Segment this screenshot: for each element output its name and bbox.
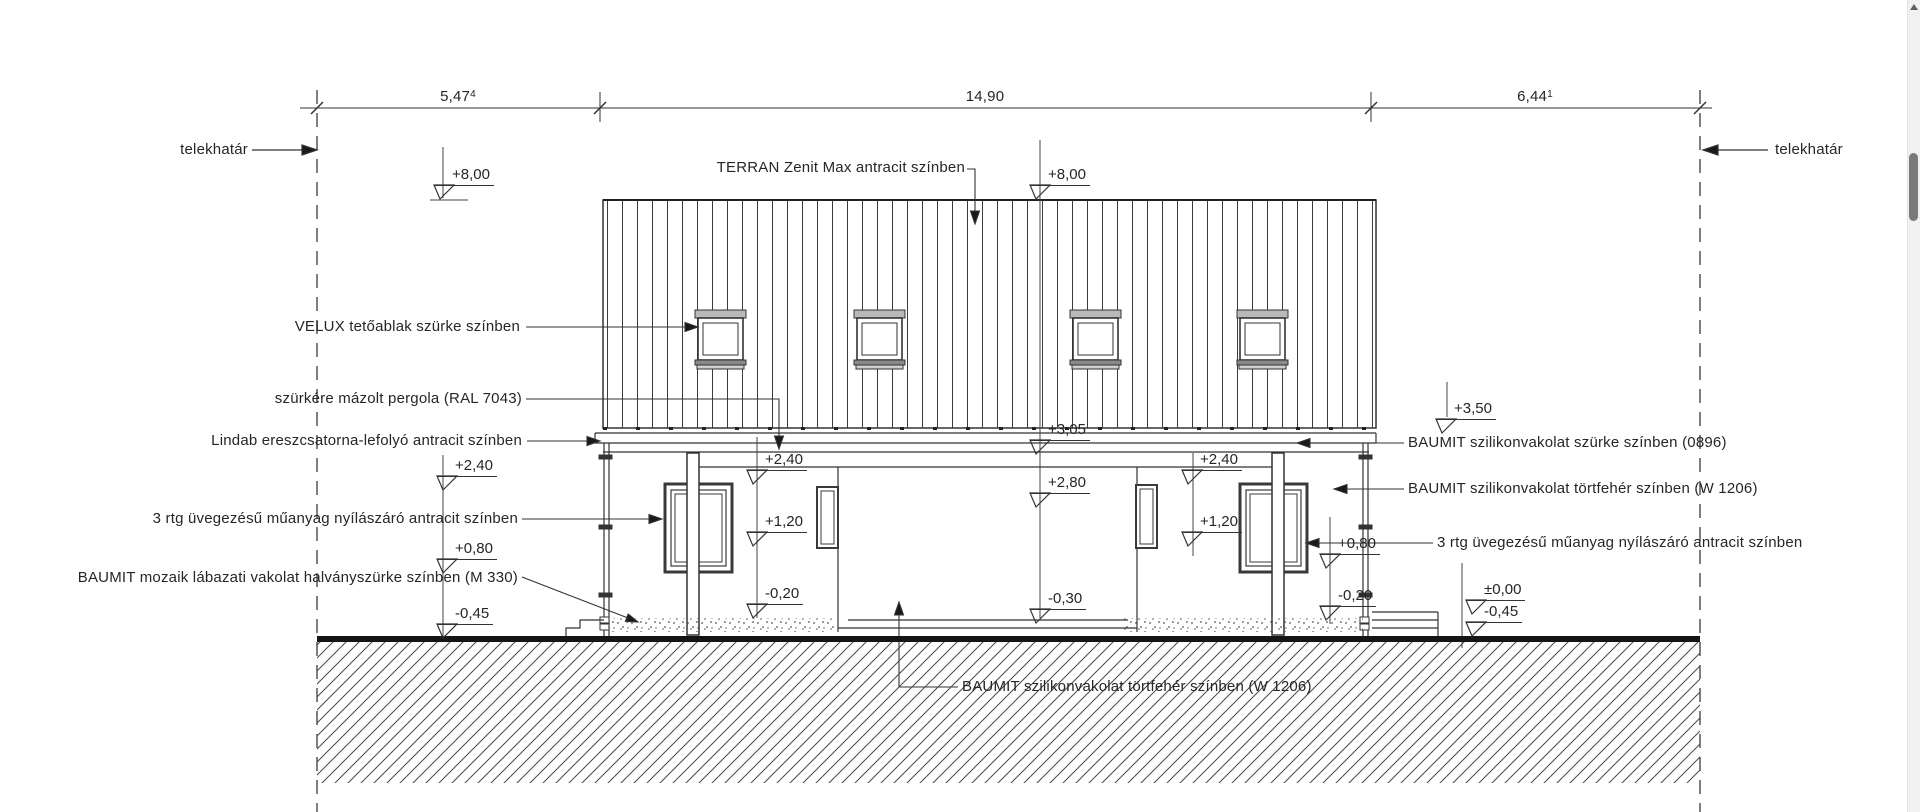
elevation-marker-right-porch-120: +1,20: [1182, 513, 1242, 533]
boundary-label-right: telekhatár: [1775, 142, 1843, 158]
elevation-marker-ridge-left: +8,00: [434, 166, 494, 186]
vertical-scrollbar-thumb[interactable]: [1909, 153, 1918, 221]
elevation-flag-icon: [1029, 439, 1051, 456]
dimension-value-1: 5,474: [398, 87, 518, 105]
callout-roof: TERRAN Zenit Max antracit színben: [600, 160, 965, 176]
elevation-flag-icon: [746, 531, 768, 548]
window-narrow-left: [817, 487, 838, 548]
elevation-flag-icon: [746, 603, 768, 620]
elevation-marker-parapet-right: +3,50: [1436, 400, 1496, 420]
elevation-flag-icon: [436, 623, 458, 640]
elevation-marker-garage-280: +2,80: [1030, 474, 1090, 494]
elevation-marker-left-080: +0,80: [437, 540, 497, 560]
roof-window-2: [854, 310, 905, 369]
elevation-marker-left-240: +2,40: [437, 457, 497, 477]
fascia-band: [595, 433, 1376, 452]
elevation-marker-right-porch-240: +2,40: [1182, 451, 1242, 471]
elevation-drawing-page: 5,474 14,90 6,441 telekhatár telekhatár …: [0, 0, 1920, 812]
elevation-marker-right-wall-020: -0,20: [1320, 587, 1376, 607]
callout-lindab: Lindab ereszcsatorna-lefolyó antracit sz…: [122, 433, 522, 449]
elevation-flag-icon: [1319, 553, 1341, 570]
elevation-flag-icon: [1435, 418, 1457, 435]
elevation-marker-porch-120: +1,20: [747, 513, 807, 533]
vertical-scrollbar-track[interactable]: [1907, 0, 1920, 812]
elevation-flag-icon: [436, 558, 458, 575]
roof-window-4: [1237, 310, 1288, 369]
elevation-flag-icon: [1319, 605, 1341, 622]
window-narrow-right: [1136, 485, 1157, 548]
callout-window-right: 3 rtg üvegezésű műanyag nyílászáró antra…: [1437, 535, 1802, 551]
dimension-value-3: 6,441: [1475, 87, 1595, 105]
elevation-marker-eave: +3,05: [1030, 421, 1090, 441]
openings: [698, 467, 1277, 632]
callout-window-left: 3 rtg üvegezésű műanyag nyílászáró antra…: [95, 511, 518, 527]
callout-render-grey: BAUMIT szilikonvakolat szürke színben (0…: [1408, 435, 1727, 451]
callout-pergola: szürkére mázolt pergola (RAL 7043): [222, 391, 522, 407]
elevation-marker-left-045: -0,45: [437, 605, 493, 625]
ground-hatch: [317, 642, 1700, 783]
elevation-marker-grade-045: -0,45: [1466, 603, 1522, 623]
callout-velux: VELUX tetőablak szürke színben: [220, 319, 520, 335]
elevation-flag-icon: [746, 469, 768, 486]
boundary-label-left: telekhatár: [140, 142, 248, 158]
ground-line: [317, 636, 1700, 642]
elevation-marker-garage-030: -0,30: [1030, 590, 1086, 610]
boundary-arrows: [252, 145, 1768, 155]
roof-window-1: [695, 310, 746, 369]
elevation-marker-grade-000: ±0,00: [1466, 581, 1525, 601]
elevation-marker-right-wall-080: +0,80: [1320, 535, 1380, 555]
scrollbar-up-arrow-icon[interactable]: [1910, 4, 1918, 10]
callout-render-offwhite: BAUMIT szilikonvakolat törtfehér színben…: [1408, 481, 1758, 497]
elevation-flag-icon: [1029, 492, 1051, 509]
elevation-flag-icon: [436, 475, 458, 492]
elevation-flag-icon: [1465, 621, 1487, 638]
roof-window-3: [1070, 310, 1121, 369]
elevation-flag-icon: [1029, 608, 1051, 625]
elevation-marker-ridge-center: +8,00: [1030, 166, 1090, 186]
elevation-flag-icon: [1029, 184, 1051, 201]
callout-render-offwhite-bottom: BAUMIT szilikonvakolat törtfehér színben…: [962, 679, 1312, 695]
elevation-flag-icon: [1181, 469, 1203, 486]
dimension-value-2: 14,90: [925, 87, 1045, 105]
elevation-flag-icon: [433, 184, 455, 201]
elevation-marker-porch-240: +2,40: [747, 451, 807, 471]
elevation-marker-porch-020: -0,20: [747, 585, 803, 605]
elevation-flag-icon: [1181, 531, 1203, 548]
